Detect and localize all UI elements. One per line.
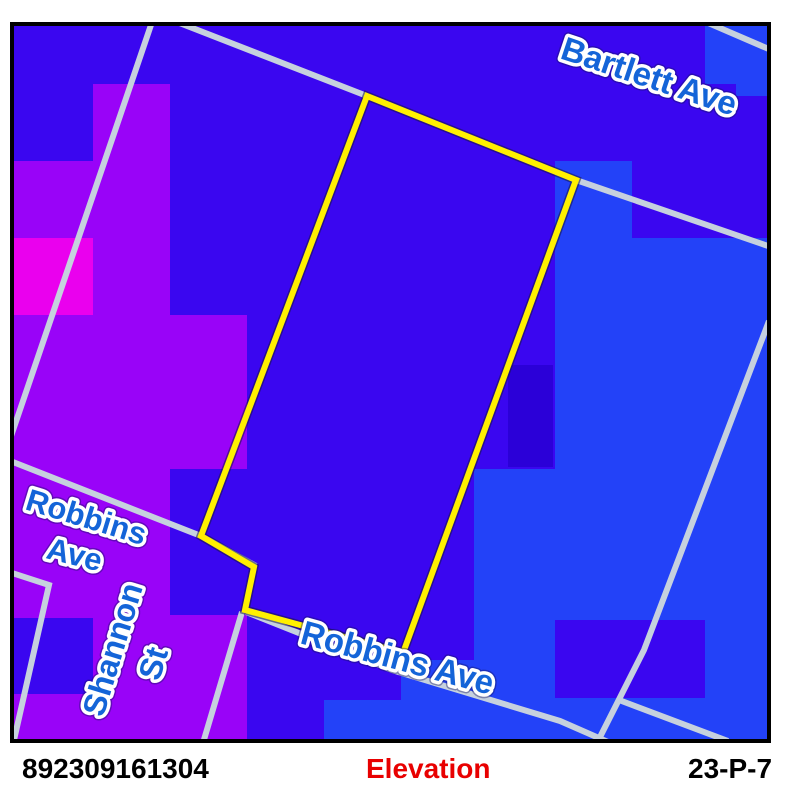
svg-text:Elevation: Elevation: [366, 753, 490, 784]
svg-text:23-P-7: 23-P-7: [688, 753, 772, 784]
svg-text:892309161304: 892309161304: [22, 753, 209, 784]
